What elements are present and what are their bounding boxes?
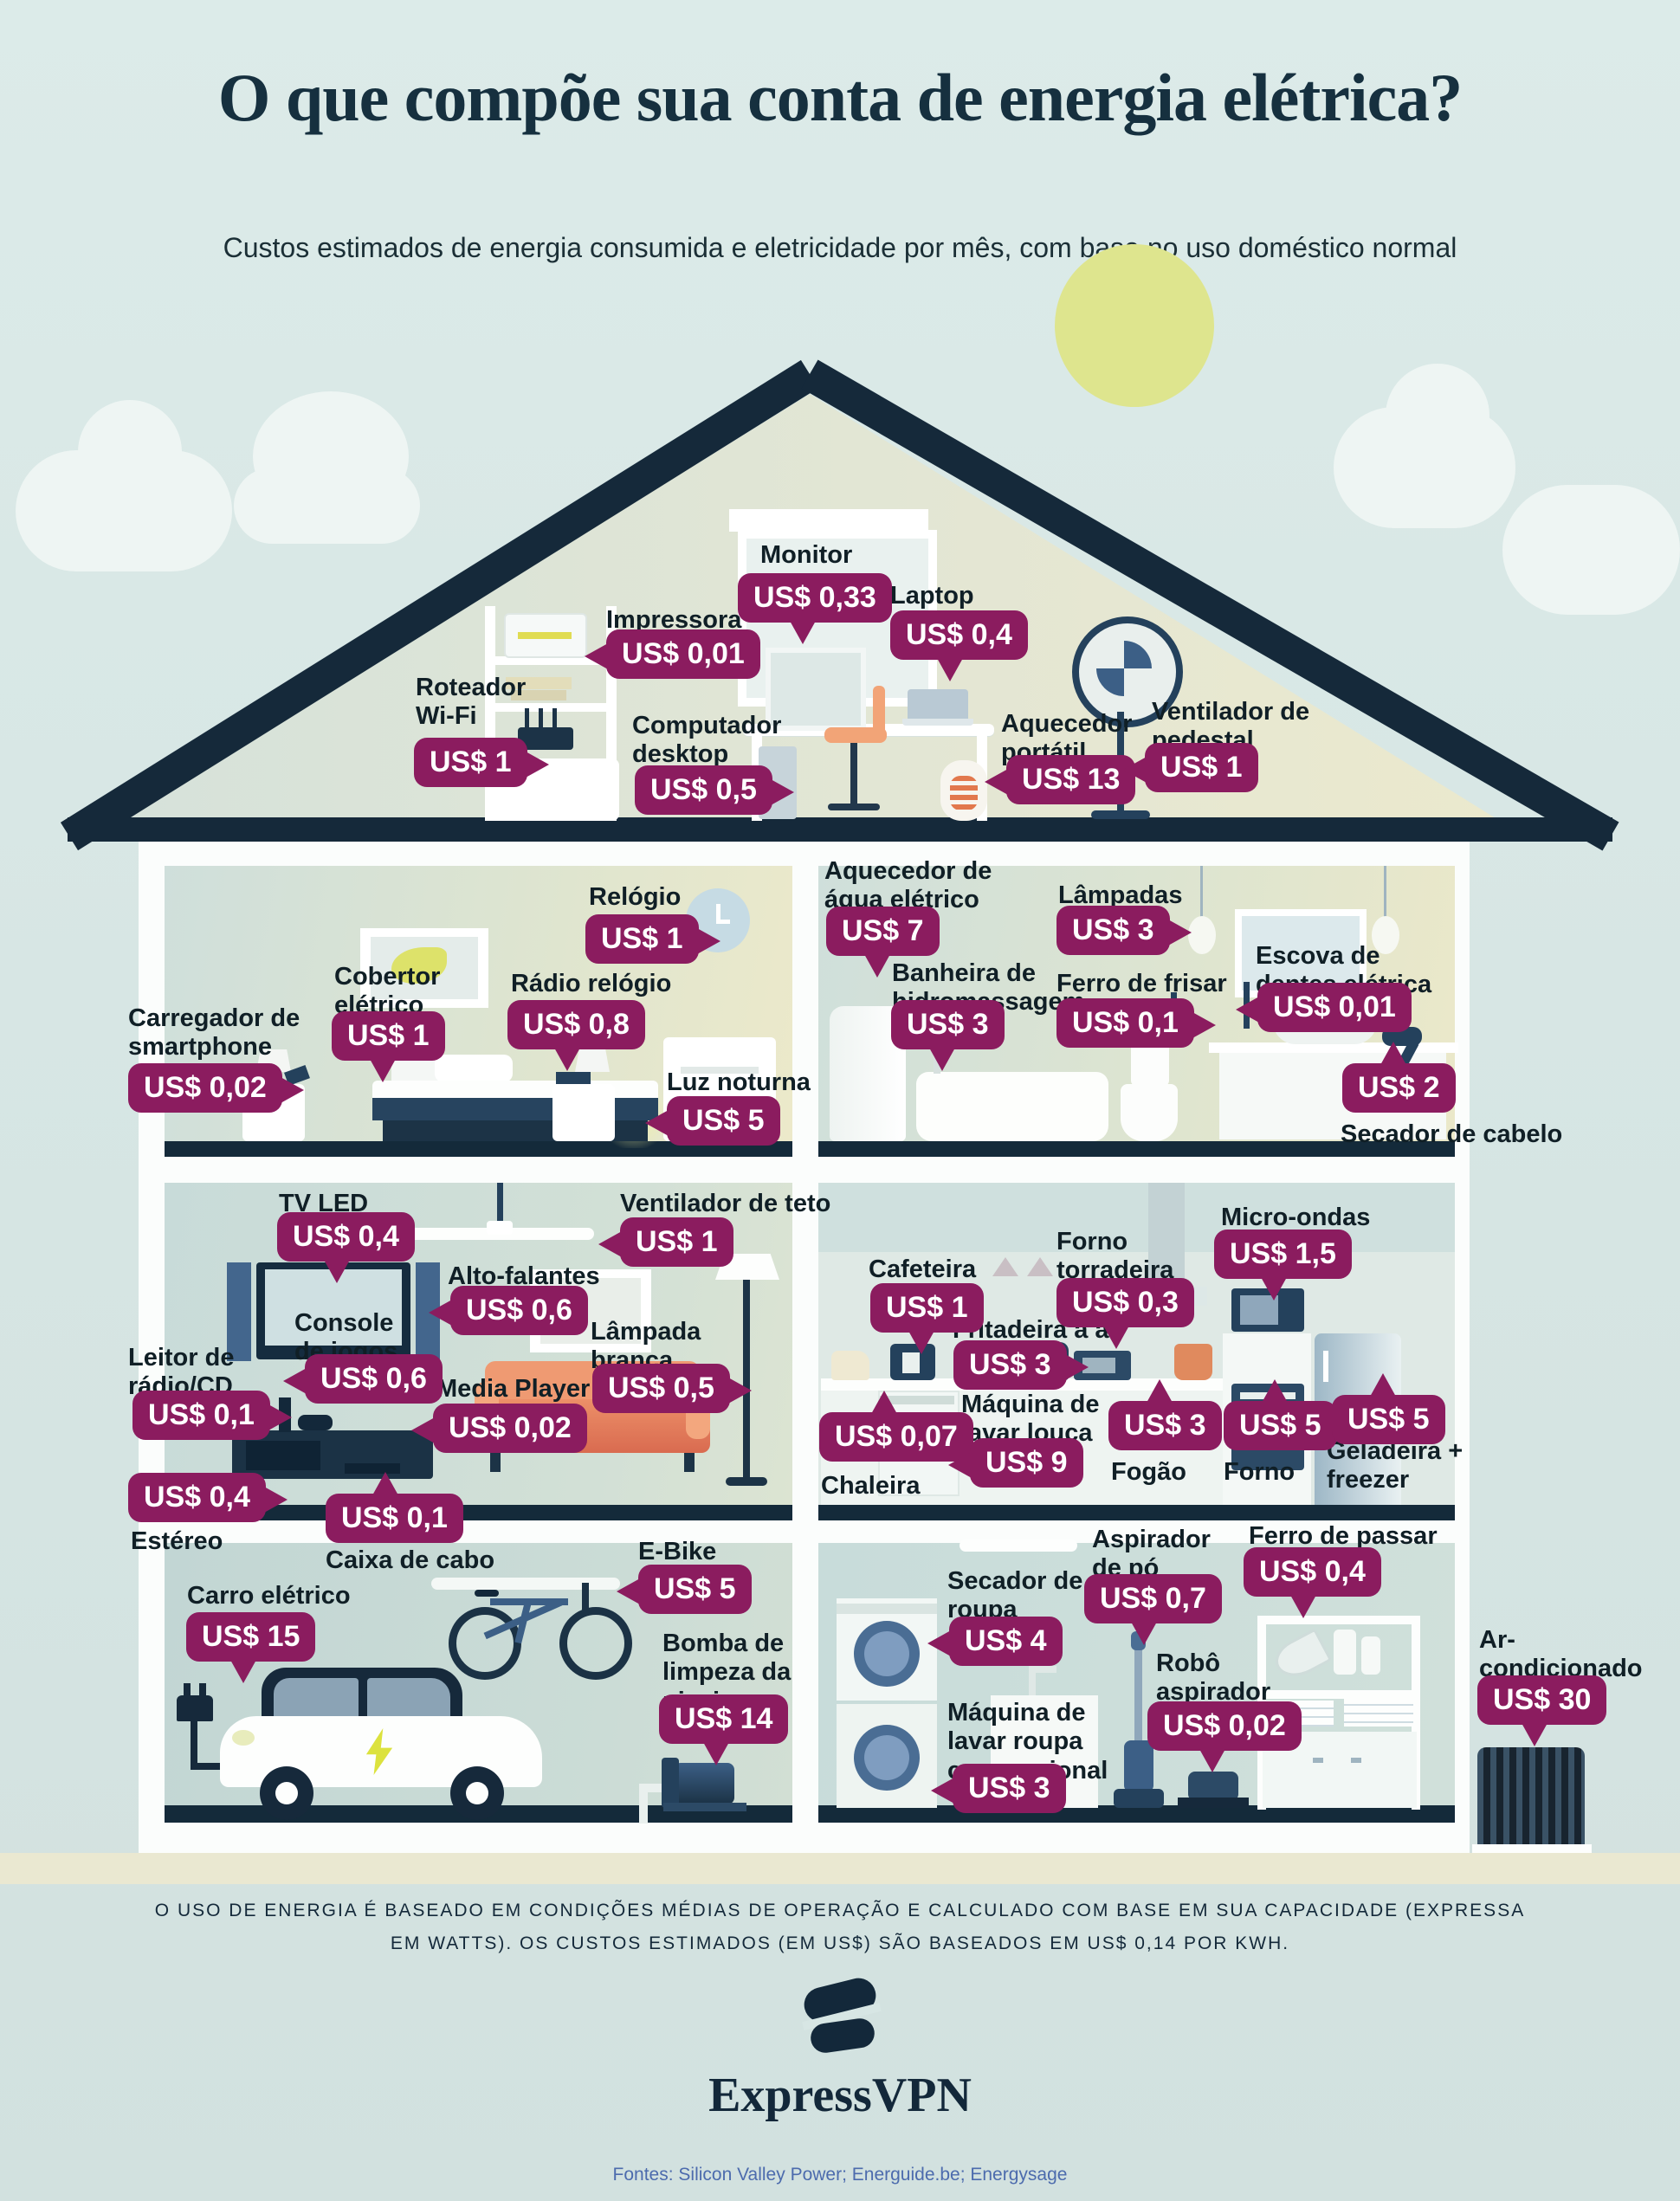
ceiling-fan-illustration bbox=[487, 1221, 513, 1235]
electric-car-illustration bbox=[232, 1730, 255, 1746]
printer-icon bbox=[518, 632, 572, 639]
desktop-computer-label: Computador desktop bbox=[632, 712, 781, 770]
stick-vacuum-illustration bbox=[1134, 1645, 1142, 1749]
clock-radio-label: Rádio relógio bbox=[511, 970, 671, 998]
air-fryer-badge: US$ 3 bbox=[953, 1340, 1067, 1390]
media-player-badge: US$ 0,02 bbox=[433, 1404, 587, 1453]
air-conditioner-illustration bbox=[1477, 1747, 1585, 1849]
footnote: O uso de energia é baseado em condições … bbox=[147, 1894, 1533, 1960]
pedestal-fan-badge: US$ 1 bbox=[1145, 743, 1258, 792]
chair-illustration bbox=[824, 727, 887, 743]
electric-car-illustration bbox=[466, 1782, 488, 1804]
roof bbox=[0, 0, 1680, 875]
electric-car-illustration bbox=[274, 1678, 359, 1721]
sources-line: Fontes: Silicon Valley Power; Energuide.… bbox=[0, 2165, 1680, 2185]
detergent-bottles-illustration bbox=[1334, 1630, 1356, 1675]
toaster-oven-badge: US$ 0,3 bbox=[1056, 1278, 1194, 1327]
clock-radio-badge: US$ 0,8 bbox=[507, 1000, 645, 1049]
sofa-illustration bbox=[490, 1453, 501, 1472]
game-console-badge: US$ 0,6 bbox=[305, 1354, 443, 1404]
shelving-illustration bbox=[1257, 1616, 1420, 1624]
stove-badge: US$ 3 bbox=[1108, 1401, 1222, 1450]
washer-illustration bbox=[864, 1735, 909, 1780]
electric-car-label: Carro elétrico bbox=[187, 1582, 351, 1610]
pendant-light-illustration bbox=[1188, 916, 1216, 954]
chair-illustration bbox=[828, 804, 880, 810]
pendant-light-illustration bbox=[1200, 866, 1203, 920]
stove-label: Fogão bbox=[1111, 1458, 1186, 1487]
stick-vacuum-illustration bbox=[1124, 1740, 1153, 1792]
electric-car-illustration bbox=[367, 1678, 450, 1721]
dishwasher-badge: US$ 9 bbox=[970, 1438, 1083, 1488]
night-light-badge: US$ 5 bbox=[667, 1096, 780, 1146]
window-illustration bbox=[729, 509, 928, 532]
electric-blanket-illustration bbox=[372, 1098, 658, 1120]
stick-vacuum-illustration bbox=[1114, 1789, 1164, 1808]
microwave-badge: US$ 1,5 bbox=[1214, 1230, 1352, 1279]
hair-dryer-badge: US$ 2 bbox=[1342, 1063, 1456, 1113]
coffee-maker-icon bbox=[902, 1352, 920, 1373]
toaster-oven-label: Forno torradeira bbox=[1056, 1228, 1173, 1286]
ebike-illustration bbox=[475, 1590, 499, 1597]
clock-label: Relógio bbox=[589, 883, 681, 912]
bathtub-illustration bbox=[916, 1072, 1108, 1141]
lamp-illustration bbox=[575, 1049, 610, 1072]
infographic: O que compõe sua conta de energia elétri… bbox=[0, 0, 1680, 2201]
floor bbox=[818, 1505, 1455, 1520]
printer-badge: US$ 0,01 bbox=[606, 629, 760, 679]
ceiling-fan-label: Ventilador de teto bbox=[620, 1190, 830, 1218]
oven-badge: US$ 5 bbox=[1224, 1401, 1337, 1450]
pool-pump-illustration bbox=[663, 1803, 746, 1811]
chair-illustration bbox=[850, 743, 857, 805]
curling-iron-label: Ferro de frisar bbox=[1056, 970, 1227, 998]
laptop-label: Laptop bbox=[890, 582, 974, 610]
cabinet-illustration bbox=[1313, 1758, 1323, 1763]
laptop-illustration bbox=[908, 689, 968, 722]
router-icon bbox=[552, 708, 557, 729]
desktop-computer-badge: US$ 0,5 bbox=[635, 765, 772, 815]
ceiling-light-illustration bbox=[960, 1539, 1077, 1552]
stereo-badge: US$ 0,4 bbox=[128, 1473, 266, 1522]
clock-badge: US$ 1 bbox=[585, 914, 699, 964]
clock-icon bbox=[716, 920, 730, 924]
washing-machine-badge: US$ 3 bbox=[953, 1764, 1066, 1813]
led-tv-badge: US$ 0,4 bbox=[277, 1212, 415, 1262]
ebike-illustration bbox=[582, 1583, 589, 1612]
smartphone-charger-badge: US$ 0,02 bbox=[128, 1063, 282, 1113]
toilet-illustration bbox=[1121, 1084, 1178, 1141]
kettle-icon bbox=[831, 1351, 869, 1380]
coffee-maker-badge: US$ 1 bbox=[870, 1283, 984, 1333]
iron-badge: US$ 0,4 bbox=[1244, 1547, 1381, 1597]
wall-rack-illustration bbox=[431, 1578, 620, 1590]
robot-vacuum-illustration bbox=[1188, 1772, 1238, 1801]
night-light-label: Luz noturna bbox=[667, 1068, 811, 1097]
dryer-illustration bbox=[864, 1631, 909, 1676]
air-conditioner-illustration bbox=[1472, 1844, 1592, 1853]
towels-illustration bbox=[1344, 1697, 1413, 1727]
light-bulbs-badge: US$ 3 bbox=[1056, 906, 1170, 955]
pot-illustration bbox=[1174, 1344, 1212, 1380]
sofa-illustration bbox=[684, 1453, 695, 1472]
ebike-illustration bbox=[449, 1607, 521, 1680]
curling-iron-badge: US$ 0,1 bbox=[1056, 998, 1194, 1048]
ev-charger-plug-icon bbox=[191, 1720, 197, 1768]
pool-pump-badge: US$ 14 bbox=[659, 1694, 788, 1744]
white-lamp-badge: US$ 0,5 bbox=[592, 1364, 730, 1413]
expressvpn-wordmark: ExpressVPN bbox=[0, 2068, 1680, 2123]
clock-radio-illustration bbox=[556, 1072, 591, 1084]
ebike-illustration bbox=[559, 1607, 632, 1680]
electric-water-heater-badge: US$ 7 bbox=[826, 907, 940, 956]
cabinet-illustration bbox=[1351, 1758, 1361, 1763]
oven-label: Forno bbox=[1224, 1458, 1295, 1487]
ebike-label: E-Bike bbox=[638, 1538, 716, 1566]
laptop-illustration bbox=[902, 719, 973, 726]
wifi-router-label: Roteador Wi-Fi bbox=[416, 674, 526, 732]
fridge-freezer-label: Geladeira + freezer bbox=[1327, 1437, 1463, 1495]
router-icon bbox=[539, 708, 543, 729]
portable-heater-badge: US$ 13 bbox=[1006, 755, 1135, 804]
pedestal-fan-icon bbox=[1096, 641, 1152, 696]
dryer-illustration bbox=[837, 1604, 937, 1614]
robot-vacuum-badge: US$ 0,02 bbox=[1147, 1701, 1302, 1751]
clothes-dryer-badge: US$ 4 bbox=[949, 1617, 1063, 1666]
stereo-label: Estéreo bbox=[131, 1527, 223, 1556]
cable-box-badge: US$ 0,1 bbox=[326, 1494, 463, 1543]
speakers-badge: US$ 0,6 bbox=[450, 1286, 588, 1335]
laptop-badge: US$ 0,4 bbox=[890, 610, 1028, 660]
floor bbox=[818, 1805, 1455, 1823]
fridge-freezer-badge: US$ 5 bbox=[1332, 1395, 1445, 1444]
pedestal-fan-icon bbox=[1091, 810, 1150, 819]
monitor-badge: US$ 0,33 bbox=[738, 573, 892, 623]
electric-car-badge: US$ 15 bbox=[186, 1612, 315, 1662]
pool-pump-illustration bbox=[662, 1758, 679, 1808]
ceiling-fan-badge: US$ 1 bbox=[620, 1217, 733, 1267]
radio-cd-player-badge: US$ 0,1 bbox=[132, 1391, 270, 1440]
cable-box-label: Caixa de cabo bbox=[326, 1546, 494, 1575]
wifi-router-badge: US$ 1 bbox=[414, 738, 527, 787]
bed-illustration bbox=[435, 1055, 513, 1082]
coffee-maker-label: Cafeteira bbox=[869, 1255, 976, 1284]
pool-pump-illustration bbox=[674, 1763, 734, 1804]
kettle-label: Chaleira bbox=[821, 1472, 920, 1501]
electric-car-illustration bbox=[275, 1782, 298, 1804]
fridge-illustration bbox=[1323, 1351, 1328, 1382]
sink-illustration bbox=[1029, 1666, 1056, 1673]
pendant-light-illustration bbox=[1384, 866, 1386, 920]
ebike-badge: US$ 5 bbox=[638, 1565, 752, 1614]
media-player-label: Media Player bbox=[436, 1375, 590, 1404]
air-conditioner-badge: US$ 30 bbox=[1477, 1675, 1606, 1725]
whirlpool-tub-badge: US$ 3 bbox=[891, 1000, 1005, 1049]
detergent-bottles-illustration bbox=[1361, 1636, 1380, 1675]
vacuum-cleaner-badge: US$ 0,7 bbox=[1084, 1574, 1222, 1623]
hair-dryer-label: Secador de cabelo bbox=[1341, 1120, 1562, 1149]
game-controller-illustration bbox=[298, 1415, 333, 1430]
smartphone-charger-label: Carregador de smartphone bbox=[128, 1004, 300, 1062]
floor-lamp-illustration bbox=[726, 1477, 767, 1486]
nightstand-illustration bbox=[552, 1084, 615, 1141]
robot-vacuum-label: Robô aspirador bbox=[1156, 1649, 1270, 1707]
electric-toothbrush-badge: US$ 0,01 bbox=[1257, 983, 1412, 1032]
stereo-illustration bbox=[246, 1441, 320, 1470]
expressvpn-logo-icon bbox=[798, 1981, 885, 2059]
ground-strip bbox=[0, 1853, 1680, 1884]
portable-heater-icon bbox=[950, 776, 978, 810]
electric-blanket-badge: US$ 1 bbox=[332, 1011, 445, 1061]
microwave-label: Micro-ondas bbox=[1221, 1204, 1370, 1232]
robot-vacuum-illustration bbox=[1178, 1798, 1249, 1808]
monitor-label: Monitor bbox=[760, 541, 852, 570]
ev-charger-plug-icon bbox=[177, 1695, 213, 1721]
